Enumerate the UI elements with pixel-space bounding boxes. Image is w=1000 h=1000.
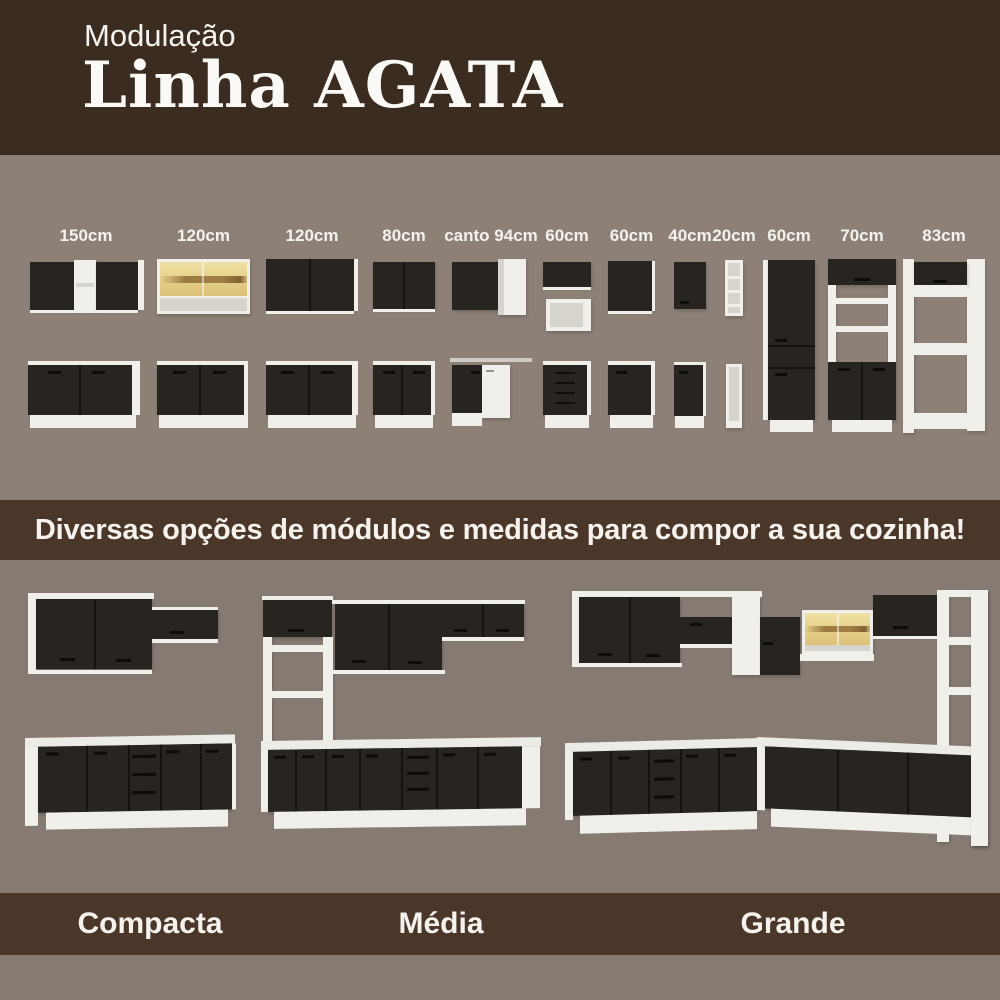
module-20cm: 20cm <box>725 155 743 500</box>
door-gap <box>79 365 81 415</box>
door-handle <box>486 370 494 372</box>
drawer-handle <box>654 759 674 763</box>
cabinet-side-panel <box>522 746 540 808</box>
plinth <box>545 415 589 428</box>
door-handle <box>288 629 304 632</box>
page-title: Linha AGATA <box>82 48 563 123</box>
door-handle <box>686 755 698 758</box>
wall-cabinet-black <box>543 262 591 287</box>
header: Modulação Linha AGATA <box>0 0 1000 155</box>
door-gap <box>325 749 327 811</box>
modules-section: 150cm 120cm <box>0 155 1000 500</box>
shelf <box>263 645 333 652</box>
door-handle <box>454 629 467 632</box>
plinth <box>274 808 526 829</box>
door-handle <box>775 373 787 376</box>
door-handle <box>366 754 378 757</box>
door-gap <box>403 262 405 309</box>
drawer-handle <box>654 777 674 781</box>
drawer-handle <box>132 755 156 758</box>
wall-open-shelf <box>805 645 870 651</box>
door-handle <box>94 752 107 755</box>
kitchen-label-media: Média <box>398 893 483 955</box>
tower-side-panel <box>888 285 896 362</box>
tower-top-cabinet <box>828 259 896 285</box>
corner-wall-cabinet <box>760 617 800 675</box>
door-gap <box>295 749 297 811</box>
cabinet-bottom-edge <box>873 636 937 639</box>
shelf <box>828 326 896 332</box>
plinth <box>46 809 228 829</box>
module-size-label: 150cm <box>60 226 113 246</box>
door-gap <box>610 751 612 815</box>
base-cabinet-run <box>25 734 236 833</box>
module-60cm-niche: 60cm <box>543 155 591 500</box>
plinth <box>30 415 136 428</box>
door-handle <box>679 371 688 374</box>
banner: Diversas opções de módulos e medidas par… <box>0 500 1000 560</box>
door-gap <box>128 745 130 811</box>
door-gap <box>359 749 361 811</box>
plinth <box>375 415 433 428</box>
door-handle <box>933 280 947 283</box>
door-handle <box>302 755 314 758</box>
wall-cabinet-black <box>680 617 732 644</box>
door-handle <box>893 626 908 629</box>
wall-cabinet-black-door <box>96 262 138 310</box>
door-handle <box>274 756 286 759</box>
drawer-handle <box>132 773 156 776</box>
cabinet-bottom-edge <box>572 663 682 667</box>
base-cabinet-run <box>261 737 541 833</box>
cabinet-side-panel <box>431 365 435 415</box>
door-handle <box>775 339 787 342</box>
cabinet-side-panel <box>244 365 248 415</box>
door-handle <box>598 653 612 656</box>
door-handle <box>616 371 627 374</box>
module-80cm: 80cm <box>373 155 435 500</box>
wall-cabinet-black <box>152 610 218 639</box>
cabinet-bottom-edge <box>608 311 652 314</box>
plinth <box>580 811 757 834</box>
wall-cabinet-black <box>674 262 706 309</box>
door-handle <box>854 278 870 281</box>
shelf <box>800 654 874 661</box>
door-gap <box>629 597 631 663</box>
kitchens-section <box>0 560 1000 893</box>
plinth <box>268 415 356 428</box>
shelf-interior <box>729 367 739 421</box>
drawer-handle <box>555 372 575 374</box>
door-gap <box>477 747 479 809</box>
door-handle <box>46 752 59 755</box>
corner-post <box>757 746 765 810</box>
door-gap <box>200 744 202 810</box>
door-gap <box>160 745 162 811</box>
door-handle <box>281 371 294 374</box>
door-handle <box>173 371 186 374</box>
base-cabinet-front <box>608 365 651 415</box>
module-size-label: 120cm <box>177 226 230 246</box>
cabinet-bottom-edge <box>442 637 524 641</box>
cabinet-bottom-edge <box>28 670 152 674</box>
door-gap <box>401 365 403 415</box>
door-gap <box>718 748 720 812</box>
cabinet-side-panel <box>652 261 655 311</box>
tower-side-panel <box>971 590 988 846</box>
cabinet-side-panel <box>354 259 358 311</box>
shelf <box>728 304 740 307</box>
door-handle <box>60 658 75 661</box>
module-70cm-tower: 70cm <box>828 155 896 500</box>
drawer-handle <box>407 756 429 759</box>
cabinet-side-panel <box>352 365 358 415</box>
cabinet-side-panel <box>132 365 140 415</box>
cabinet-side-panel <box>565 752 573 820</box>
cabinet-bottom-edge <box>266 311 354 314</box>
door-handle <box>166 750 179 753</box>
base-cabinet-run <box>757 737 988 845</box>
plinth <box>675 416 704 428</box>
door-handle <box>116 659 131 662</box>
plinth <box>159 415 248 428</box>
door-handle <box>838 368 850 371</box>
shelf <box>828 298 896 304</box>
tower-side-panel <box>323 637 333 742</box>
door-handle <box>763 642 773 645</box>
glass-door-mullion <box>202 262 204 296</box>
door-gap <box>907 753 909 815</box>
plinth <box>452 413 482 426</box>
drawer-handle <box>654 795 674 799</box>
cabinet-side-panel <box>703 365 706 416</box>
shelf <box>263 691 333 698</box>
base-cabinet-front <box>765 746 971 817</box>
module-size-label: 40cm <box>668 226 711 246</box>
bottom-strip <box>0 955 1000 1000</box>
corner-countertop-edge <box>450 358 532 362</box>
door-gap <box>199 365 201 415</box>
shelf <box>728 276 740 279</box>
module-size-label: 120cm <box>286 226 339 246</box>
door-handle <box>213 371 226 374</box>
door-gap <box>768 367 815 369</box>
frame-side-panel <box>903 259 914 433</box>
wall-cabinet-black <box>608 261 652 311</box>
frame-rail <box>914 413 967 429</box>
wall-open-shelf <box>160 298 247 311</box>
module-size-label: 83cm <box>922 226 965 246</box>
cabinet-bottom-edge <box>373 309 435 312</box>
kitchen-label-grande: Grande <box>740 893 845 955</box>
door-handle <box>690 623 702 626</box>
door-handle <box>873 368 885 371</box>
cabinet-bottom-edge <box>543 287 591 290</box>
corner-wall-panel <box>732 597 760 675</box>
door-handle <box>443 753 455 756</box>
wall-cabinet-black <box>452 262 498 310</box>
module-size-label: 60cm <box>767 226 810 246</box>
door-handle <box>580 757 592 760</box>
module-40cm: 40cm <box>674 155 706 500</box>
plinth <box>770 420 813 432</box>
door-handle <box>206 750 219 753</box>
niche-interior <box>550 303 583 327</box>
door-gap <box>308 365 310 415</box>
module-canto-94cm: canto 94cm <box>450 155 532 500</box>
door-handle <box>680 301 689 304</box>
drawer-handle <box>407 772 429 775</box>
drawer-handle <box>407 788 429 791</box>
module-size-label: 60cm <box>610 226 653 246</box>
cabinet-side-panel <box>572 597 579 663</box>
drawer-handle <box>555 382 575 384</box>
tower-side-panel <box>828 285 836 362</box>
module-120cm-glass: 120cm <box>157 155 250 500</box>
cabinet-bottom-edge <box>152 639 218 643</box>
module-size-label: 70cm <box>840 226 883 246</box>
door-handle <box>724 754 736 757</box>
door-handle <box>170 631 184 634</box>
banner-text: Diversas opções de módulos e medidas par… <box>0 500 1000 560</box>
page: Modulação Linha AGATA 150cm 120cm <box>0 0 1000 1000</box>
door-handle <box>352 660 366 663</box>
cabinet-side-panel <box>651 365 655 415</box>
door-gap <box>94 599 96 669</box>
drawer-handle <box>132 791 156 794</box>
door-gap <box>680 749 682 813</box>
door-handle <box>618 756 630 759</box>
cabinet-side-panel <box>261 750 268 812</box>
cabinet-side-panel <box>232 743 236 809</box>
module-size-label: 60cm <box>545 226 588 246</box>
module-size-label: 20cm <box>712 226 755 246</box>
door-handle <box>471 371 480 374</box>
door-gap <box>837 749 839 811</box>
corner-base-white-door <box>482 365 510 418</box>
door-gap <box>86 746 88 812</box>
module-120cm: 120cm <box>266 155 358 500</box>
cabinet-side-panel <box>587 365 591 415</box>
module-size-label: canto 94cm <box>444 226 538 246</box>
door-gap <box>436 748 438 810</box>
module-60cm-tall: 60cm <box>763 155 815 500</box>
module-size-label: 80cm <box>382 226 425 246</box>
door-gap <box>768 345 815 347</box>
base-cabinet-front <box>573 747 757 816</box>
module-83cm-frame: 83cm <box>903 155 985 500</box>
door-handle <box>413 371 425 374</box>
door-gap <box>482 604 484 637</box>
glass-door-mullion <box>837 613 839 645</box>
door-gap <box>388 604 390 670</box>
wall-cabinet-black-door <box>30 262 74 310</box>
corner-panel-shading <box>498 259 504 315</box>
module-60cm: 60cm <box>608 155 655 500</box>
door-handle <box>321 371 334 374</box>
base-cabinet-run <box>565 738 761 838</box>
door-handle <box>383 371 395 374</box>
kitchen-label-compacta: Compacta <box>77 893 222 955</box>
base-cabinet-front <box>38 743 232 812</box>
module-150cm: 150cm <box>28 155 144 500</box>
door-handle <box>484 753 496 756</box>
frame-side-panel <box>967 259 985 431</box>
door-handle <box>408 661 422 664</box>
bottom-band: Compacta Média Grande <box>0 893 1000 955</box>
shelf-divider <box>76 283 94 287</box>
shelf <box>728 290 740 293</box>
door-gap <box>401 748 403 810</box>
door-gap <box>861 362 863 420</box>
drawer-handle <box>555 402 575 404</box>
tower-side-panel <box>263 637 272 742</box>
wall-cabinet-black <box>873 595 937 636</box>
door-handle <box>496 629 509 632</box>
cabinet-side-panel <box>28 599 36 670</box>
plinth <box>610 415 653 428</box>
cabinet-bottom-edge <box>680 644 732 648</box>
door-gap <box>648 750 650 814</box>
door-handle <box>92 371 105 374</box>
frame-rail <box>914 285 967 297</box>
door-handle <box>332 755 344 758</box>
plinth <box>832 420 892 432</box>
door-handle <box>646 654 660 657</box>
frame-rail <box>914 343 967 355</box>
cabinet-bottom-edge <box>30 310 138 313</box>
cabinet-side-panel <box>138 260 144 310</box>
door-handle <box>48 371 61 374</box>
door-gap <box>309 259 311 311</box>
cabinet-side-panel <box>25 747 38 826</box>
drawer-handle <box>555 392 575 394</box>
cabinet-bottom-edge <box>332 670 445 674</box>
